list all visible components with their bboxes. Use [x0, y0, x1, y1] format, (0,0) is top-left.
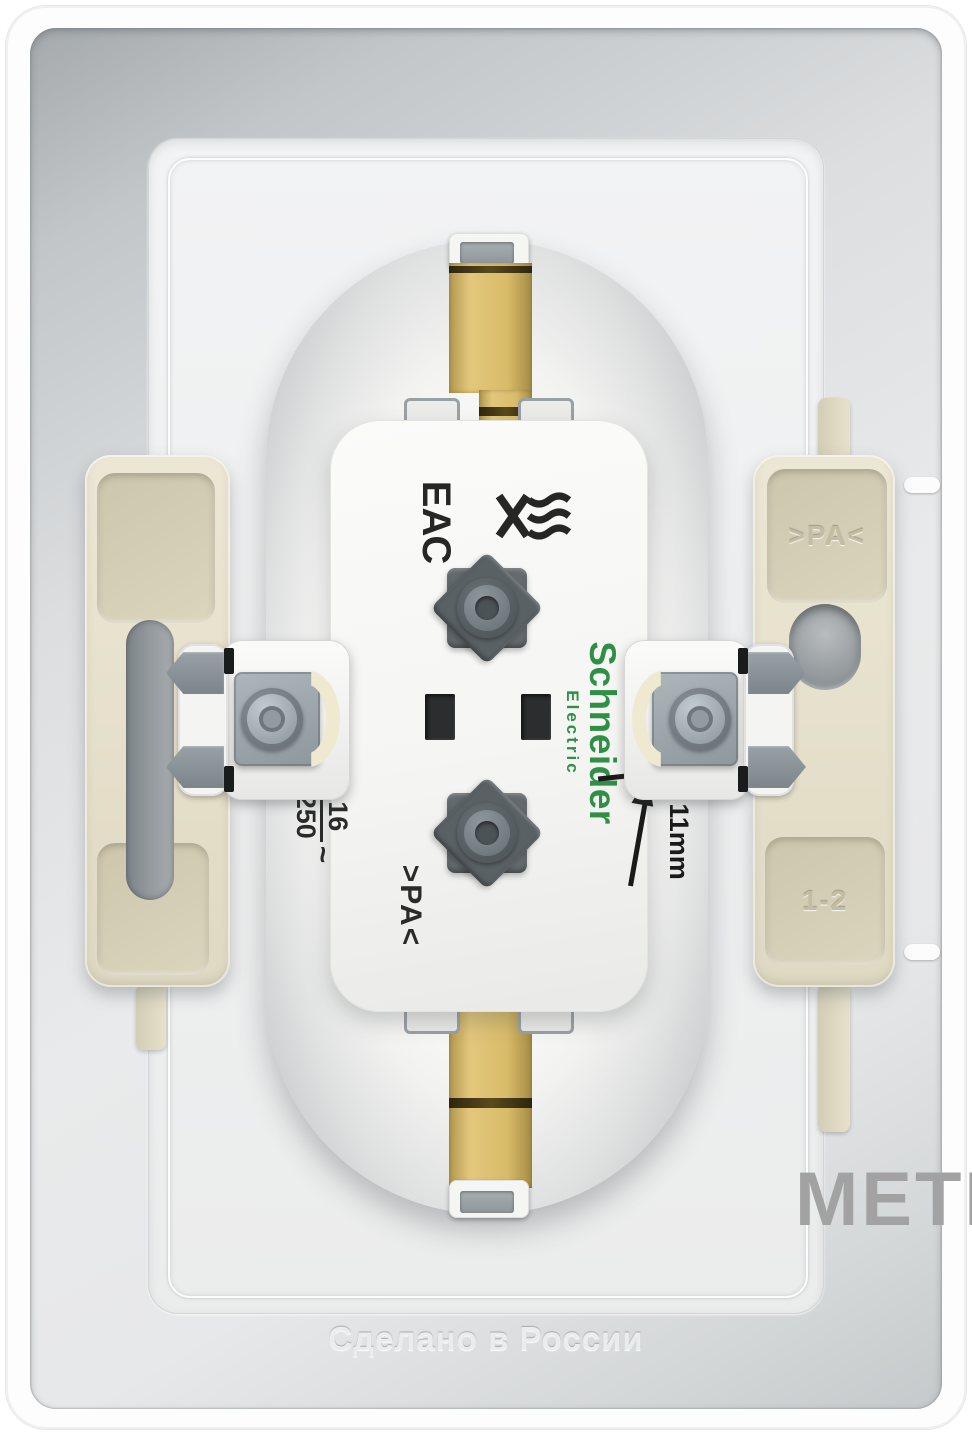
strap-seam-top	[449, 266, 532, 273]
screw-head-icon	[457, 803, 517, 863]
strap-anchor-bottom	[449, 1180, 529, 1218]
pa-marking-body: >PA<	[393, 856, 427, 956]
watermark-text: МЕТР	[795, 1162, 972, 1238]
dimension-label: 11mm	[650, 796, 706, 886]
side-terminal-screw-right	[669, 688, 731, 750]
terminal-gap	[738, 648, 748, 674]
ground-strap-top-wide	[449, 263, 532, 393]
pa-marking-claw: >PA<	[788, 520, 866, 552]
made-in-text: Сделано в России	[0, 1320, 972, 1358]
socket-back-photo: >PA< 1-2 ЕАС	[0, 0, 972, 1435]
terminal-gap	[224, 648, 234, 674]
terminal-screw-bottom	[430, 776, 544, 890]
claw-pad-left-top	[97, 473, 215, 623]
screw-head-icon	[457, 578, 517, 638]
terminal-gap	[224, 766, 234, 792]
brand-sub: Electric	[563, 690, 583, 775]
claw-tooth-left	[126, 620, 174, 900]
ac-symbol: ~	[305, 846, 339, 864]
terminal-gap	[738, 766, 748, 792]
claw-pad-right-top: >PA<	[767, 469, 887, 603]
terminal-screw-top	[430, 551, 544, 665]
strap-anchor-inset-bottom	[460, 1191, 514, 1213]
cable-hole-left	[425, 694, 455, 740]
side-terminal-screw-left	[241, 688, 303, 750]
dimension-arrow-line	[628, 801, 648, 887]
panel-tab-lower	[904, 944, 940, 960]
claw-strip-right-top	[818, 398, 850, 460]
claw-strip-right-bottom	[818, 984, 850, 1132]
claw-strip-left-bottom	[136, 984, 166, 1050]
strap-anchor-inset	[460, 242, 514, 264]
claw-pad-right-bottom: 1-2	[765, 837, 885, 965]
strap-seam-bottom	[449, 1098, 532, 1108]
cable-hole-right	[521, 694, 551, 740]
claw-range-marking: 1-2	[802, 885, 848, 917]
panel-tab-upper	[904, 477, 940, 493]
